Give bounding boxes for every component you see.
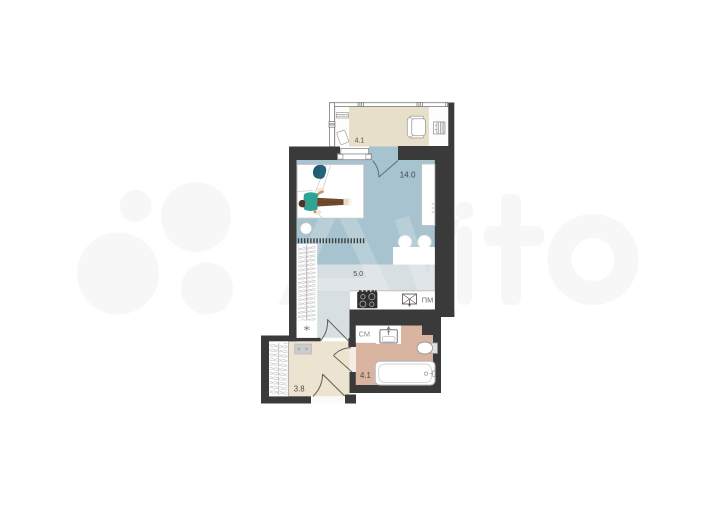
svg-text:4.1: 4.1: [360, 371, 371, 380]
svg-text:4.1: 4.1: [355, 138, 365, 145]
svg-text:ПМ: ПМ: [422, 296, 433, 305]
svg-text:5.0: 5.0: [353, 269, 363, 278]
svg-text:3.8: 3.8: [294, 385, 305, 394]
svg-text:14.0: 14.0: [400, 170, 416, 179]
svg-text:СМ: СМ: [359, 330, 370, 339]
